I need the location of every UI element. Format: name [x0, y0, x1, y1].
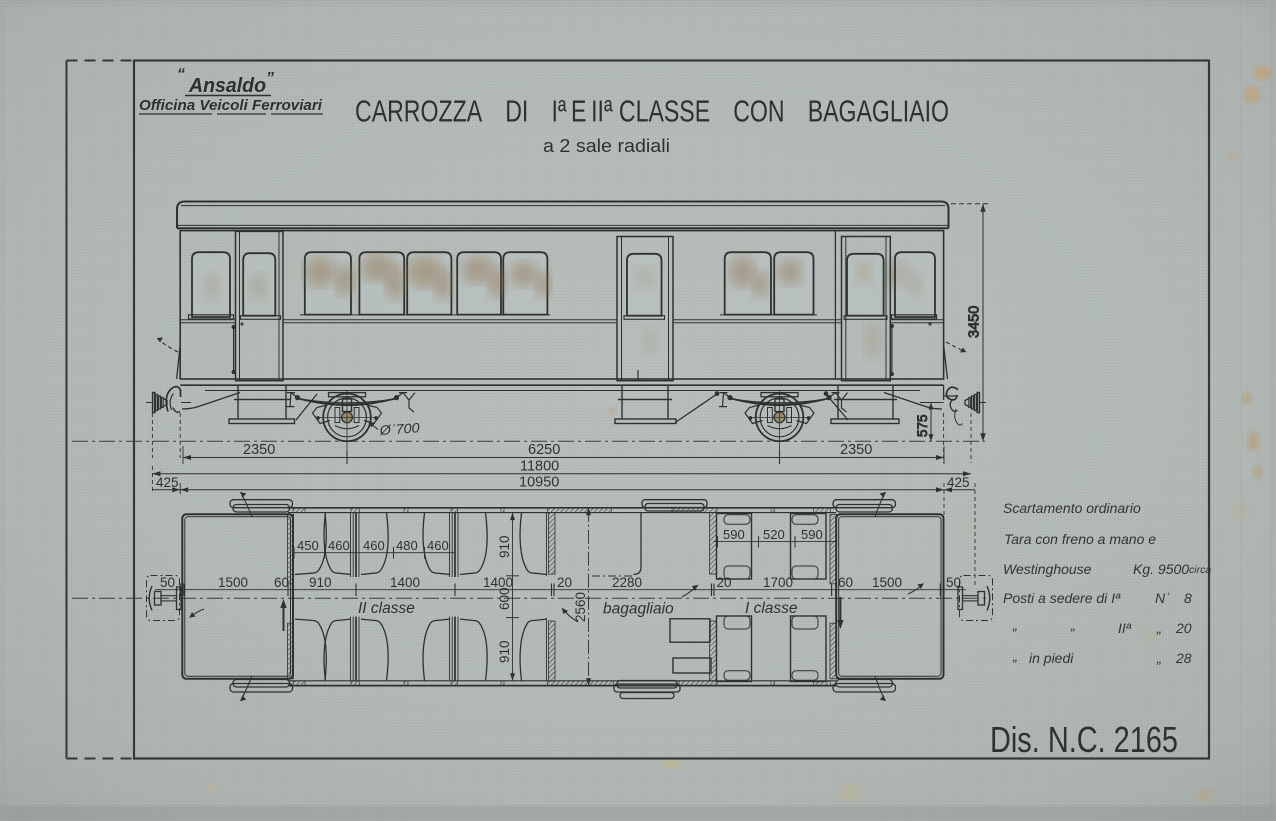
svg-text:”: ” — [266, 70, 274, 87]
svg-text:Scartamento ordinario: Scartamento ordinario — [1003, 500, 1141, 516]
svg-text:„: „ — [1156, 620, 1162, 636]
svg-text:480: 480 — [396, 538, 418, 553]
svg-text:„: „ — [1012, 617, 1018, 633]
svg-text:in piedi: in piedi — [1029, 650, 1074, 666]
svg-text:460: 460 — [427, 538, 449, 553]
svg-text:11800: 11800 — [520, 459, 559, 475]
svg-text:circa: circa — [1189, 564, 1211, 576]
svg-text:2560: 2560 — [573, 592, 588, 622]
svg-text:20: 20 — [1175, 620, 1192, 636]
svg-text:Nʿ: Nʿ — [1155, 590, 1170, 606]
svg-text:10950: 10950 — [519, 475, 559, 491]
svg-text:1500: 1500 — [872, 575, 902, 590]
svg-text:20: 20 — [717, 575, 732, 590]
svg-text:CARROZZA DI Iª E IIª CLASSE CO: CARROZZA DI Iª E IIª CLASSE CON BAGAGLIA… — [355, 94, 949, 129]
svg-text:Dis. N.C. 2165: Dis. N.C. 2165 — [990, 719, 1178, 760]
svg-text:590: 590 — [801, 527, 823, 542]
svg-text:Tara con freno a mano e: Tara con freno a mano e — [1004, 531, 1156, 547]
svg-text:1700: 1700 — [763, 575, 793, 590]
svg-text:„: „ — [1070, 617, 1076, 633]
svg-text:590: 590 — [723, 527, 745, 542]
svg-text:1400: 1400 — [390, 575, 420, 590]
svg-text:910: 910 — [497, 535, 512, 558]
svg-text:Ansaldo: Ansaldo — [188, 75, 266, 97]
svg-text:1500: 1500 — [218, 575, 248, 590]
svg-text:520: 520 — [763, 527, 785, 542]
svg-text:„: „ — [1156, 650, 1162, 666]
svg-text:425: 425 — [156, 475, 179, 490]
svg-text:2350: 2350 — [840, 442, 872, 458]
svg-text:28: 28 — [1175, 650, 1192, 666]
svg-text:2350: 2350 — [243, 442, 275, 458]
svg-text:2280: 2280 — [612, 575, 642, 590]
svg-text:IIª: IIª — [1118, 620, 1132, 636]
svg-text:Øʾ700: Øʾ700 — [378, 420, 421, 438]
svg-text:Posti a sedere di Iª: Posti a sedere di Iª — [1003, 590, 1121, 606]
svg-text:Officina Veicoli Ferroviari: Officina Veicoli Ferroviari — [139, 98, 323, 114]
svg-text:60: 60 — [274, 575, 289, 590]
svg-text:3450: 3450 — [967, 306, 983, 338]
svg-text:600: 600 — [497, 587, 512, 610]
svg-text:a 2 sale radiali: a 2 sale radiali — [543, 136, 670, 156]
svg-text:8: 8 — [1184, 590, 1192, 606]
svg-text:910: 910 — [497, 640, 512, 663]
svg-text:Kg. 9500: Kg. 9500 — [1133, 561, 1189, 577]
svg-text:910: 910 — [309, 575, 332, 590]
svg-text:50: 50 — [946, 575, 961, 590]
svg-text:20: 20 — [557, 575, 572, 590]
svg-text:bagagliaio: bagagliaio — [603, 601, 674, 618]
svg-text:6250: 6250 — [528, 442, 560, 458]
svg-text:“: “ — [177, 66, 185, 83]
svg-text:425: 425 — [947, 475, 970, 490]
svg-text:460: 460 — [363, 538, 385, 553]
svg-text:60: 60 — [838, 575, 853, 590]
svg-text:575: 575 — [915, 414, 930, 437]
svg-text:460: 460 — [328, 538, 350, 553]
svg-text:I classe: I classe — [745, 600, 798, 617]
svg-text:450: 450 — [297, 538, 319, 553]
svg-text:„: „ — [1012, 648, 1018, 664]
svg-text:Westinghouse: Westinghouse — [1003, 561, 1092, 577]
svg-text:II classe: II classe — [358, 600, 415, 617]
svg-text:50: 50 — [160, 575, 175, 590]
